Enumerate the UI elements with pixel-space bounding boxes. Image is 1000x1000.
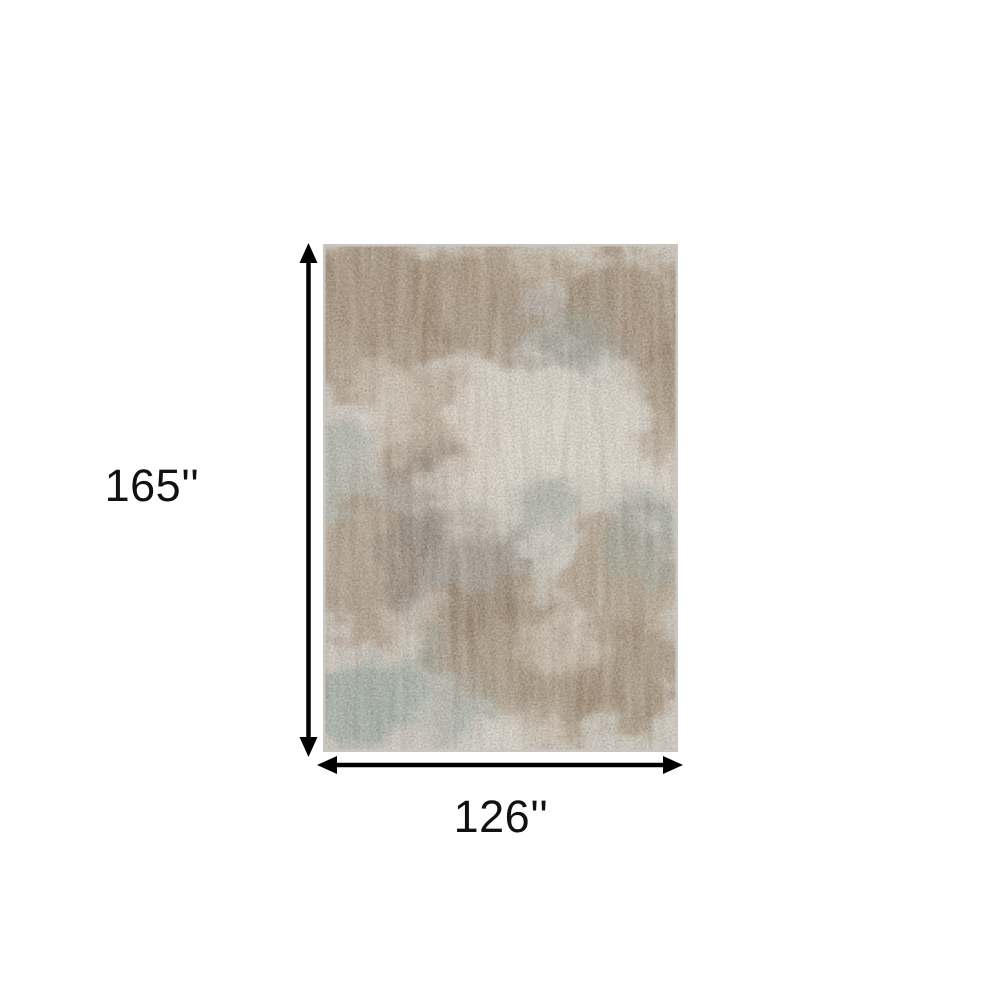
height-dimension-label: 165'' <box>105 460 200 512</box>
arrow-left-icon <box>317 756 337 774</box>
rug-texture-svg <box>323 244 678 752</box>
product-dimension-diagram: 165'' 126'' <box>0 0 1000 1000</box>
width-dimension-label: 126'' <box>454 791 549 843</box>
arrow-right-icon <box>663 756 683 774</box>
arrow-up-icon <box>300 243 318 263</box>
height-arrow <box>300 243 318 757</box>
rug-speckle-light <box>323 244 678 752</box>
width-arrow <box>317 756 683 774</box>
arrow-down-icon <box>300 737 318 757</box>
rug-image <box>323 244 678 752</box>
